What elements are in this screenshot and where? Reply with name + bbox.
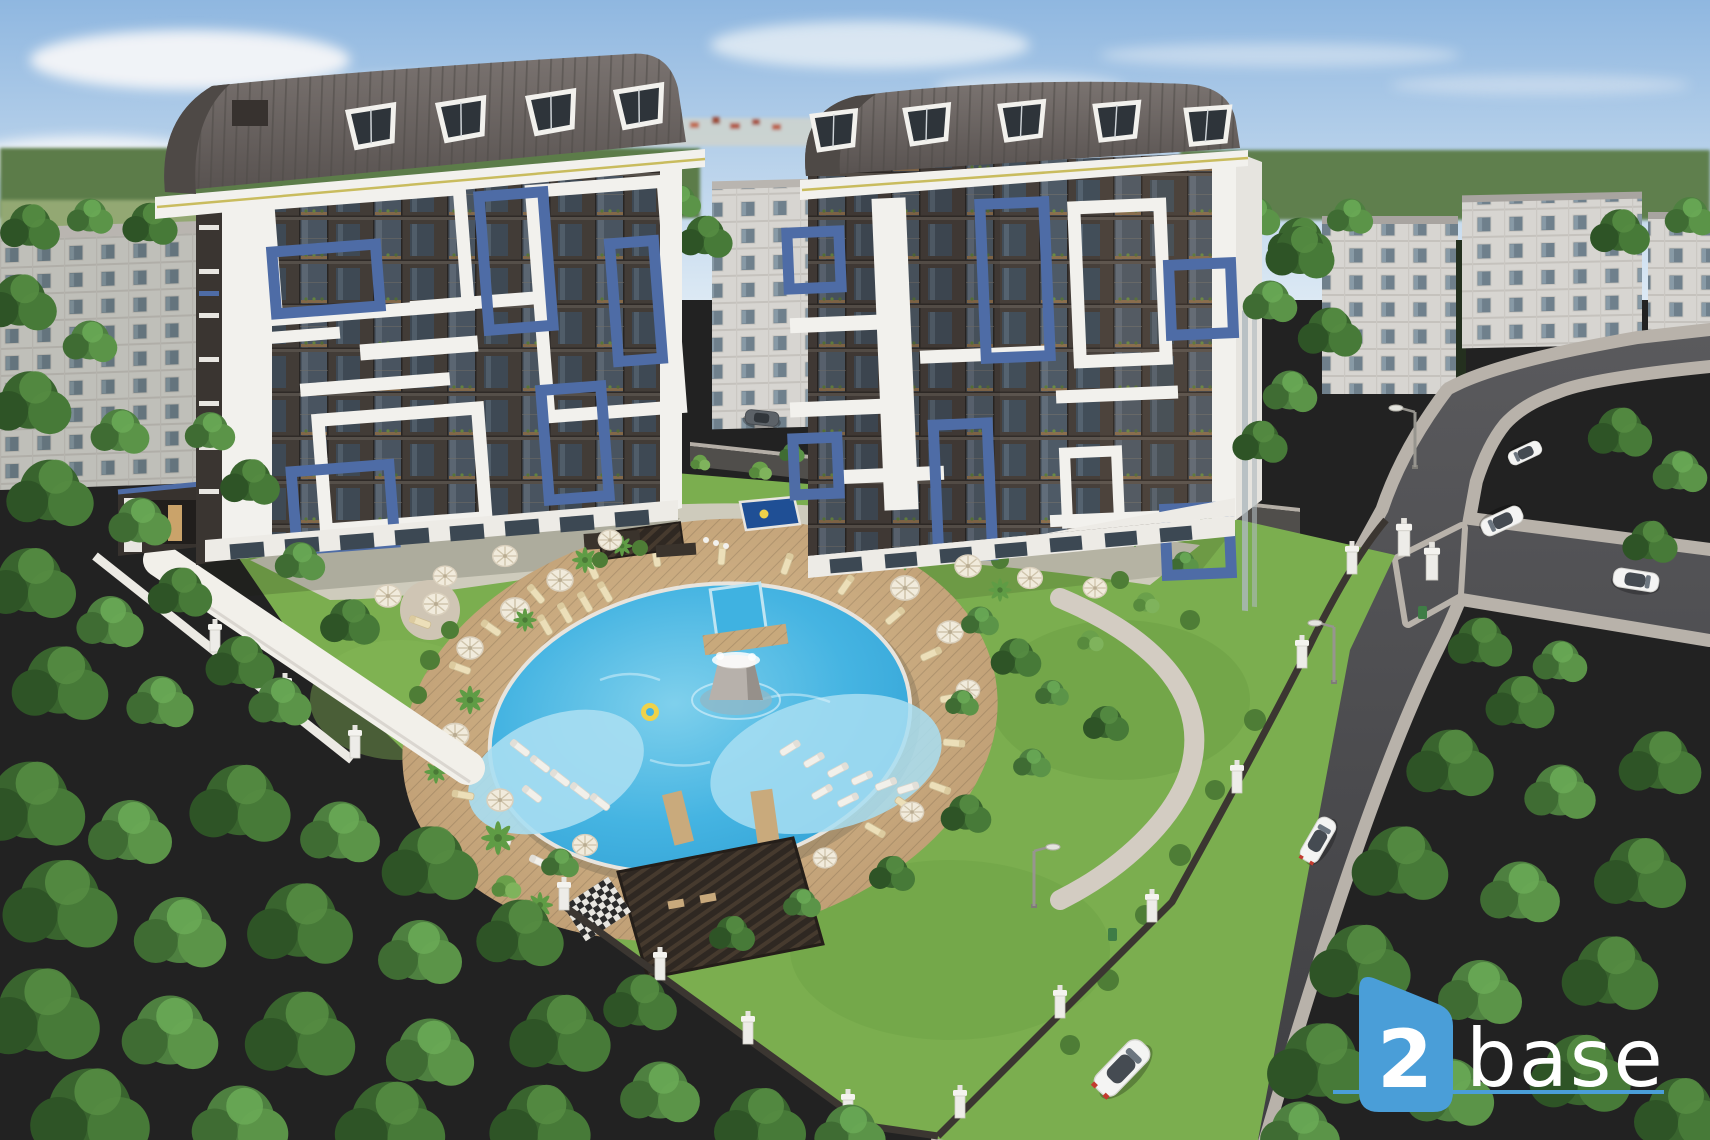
background-building-center — [712, 179, 818, 430]
left-tower — [155, 54, 705, 607]
aerial-render: Aerial architectural rendering of a mode… — [0, 0, 1710, 1140]
logo-word: base — [1466, 1012, 1665, 1105]
white-car-upper-road-1 — [1503, 435, 1545, 467]
render-scene: Aerial architectural rendering of a mode… — [0, 0, 1710, 1140]
left-tower-side — [196, 192, 222, 565]
logo-number: 2 — [1377, 1013, 1433, 1106]
right-tower — [787, 82, 1262, 611]
right-tower-side — [1236, 152, 1262, 520]
kids-pool — [740, 497, 800, 530]
